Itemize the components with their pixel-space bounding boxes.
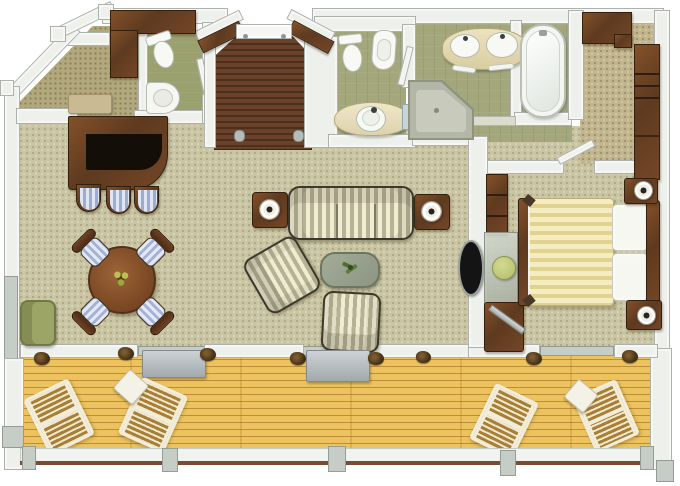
wc-faucet [371,107,377,113]
sofa-seat-divider-1 [336,204,338,240]
foyer-left-wall [204,44,216,148]
wc-bidet [371,29,398,71]
wc-basin-ring [362,110,380,126]
bathtub-inner [526,30,560,112]
foyer-right-wall [304,36,338,148]
powder-corner-sink [146,82,180,114]
railing-post-4 [500,450,516,476]
nightstand-lamp-bottom [637,306,656,325]
wardrobe-shelf-line-2 [635,85,659,87]
potted-plant-3 [200,348,216,361]
door-sill-bedroom [540,346,614,356]
bed-pillow-top [612,204,648,251]
entry-wardrobe-column [110,30,138,78]
railing-post-3 [328,446,346,472]
wc-toilet-bowl [341,43,364,73]
bar-counter-well [86,134,162,170]
railing-post-5 [640,446,654,470]
foyer-door-pivot-left [234,130,245,142]
bedroom-top-wall-1 [484,160,564,174]
armchair-front [320,291,381,354]
bed-pillow-bottom [612,253,648,301]
potted-plant-1 [34,352,50,365]
table-lamp-left [259,199,280,220]
potted-plant-5 [368,352,384,365]
railing-post-2 [162,448,178,472]
wc-bidet-inner [376,39,392,62]
entry-door-handle-right [281,34,286,39]
bar-stool-3 [134,186,159,214]
bar-stool-2 [106,186,131,214]
balcony-corner-right [656,460,674,482]
nightstand-lamp-top [634,181,653,200]
wc-toilet [338,33,368,77]
vanity-faucet-right [500,34,505,39]
bar-stool-cushion [110,190,129,212]
entry-door-handle-left [243,34,248,39]
left-window-panel [4,276,18,364]
vanity-faucet-left [463,36,468,41]
olive-armchair [20,300,56,346]
foyer-door-pivot-right [293,130,304,142]
balcony-storage-box-left [142,350,206,378]
bathroom-threshold [470,116,516,126]
balcony-front-wall-2 [204,344,304,358]
shower-drain [434,108,439,113]
bar-stool-cushion [80,188,99,210]
bar-stool-1 [76,184,101,212]
wardrobe-shelf-line-3 [635,97,659,99]
sofa [288,186,414,240]
table-lamp-right [421,201,442,222]
dressing-wardrobe-step [614,34,632,48]
bar-stool-cushion [138,190,157,212]
wardrobe-seam [635,135,659,137]
balcony-corner-left [2,426,24,448]
potted-plant-7 [526,352,542,365]
wall-nub-2 [50,26,66,42]
coffee-table-plant-center [348,265,353,270]
wall-nub-1 [0,80,14,96]
living-tv [458,240,484,296]
vanity-stool [492,256,516,280]
floor-plan [0,0,680,486]
dining-centerpiece [112,270,130,286]
bedroom-top-wall-2 [594,160,636,174]
bathtub-faucet [539,30,547,36]
toilet-room-bottom-wall [328,134,416,148]
bed-duvet [528,198,614,306]
shelf-line-2 [487,215,507,217]
potted-plant-6 [416,351,431,363]
balcony-storage-box-center [306,350,370,382]
potted-plant-4 [290,352,306,365]
shelf-line-1 [487,194,507,196]
wardrobe-shelf-line-1 [635,73,659,75]
potted-plant-8 [622,350,638,363]
partition-shelving [486,174,508,236]
dressing-wardrobe-tall [634,44,660,180]
powder-sink-basin [153,89,173,107]
sofa-seat-divider-2 [374,204,376,240]
railing-post-1 [22,446,36,470]
hall-bench [68,94,112,114]
potted-plant-2 [118,347,134,360]
bed-headboard [646,200,660,306]
